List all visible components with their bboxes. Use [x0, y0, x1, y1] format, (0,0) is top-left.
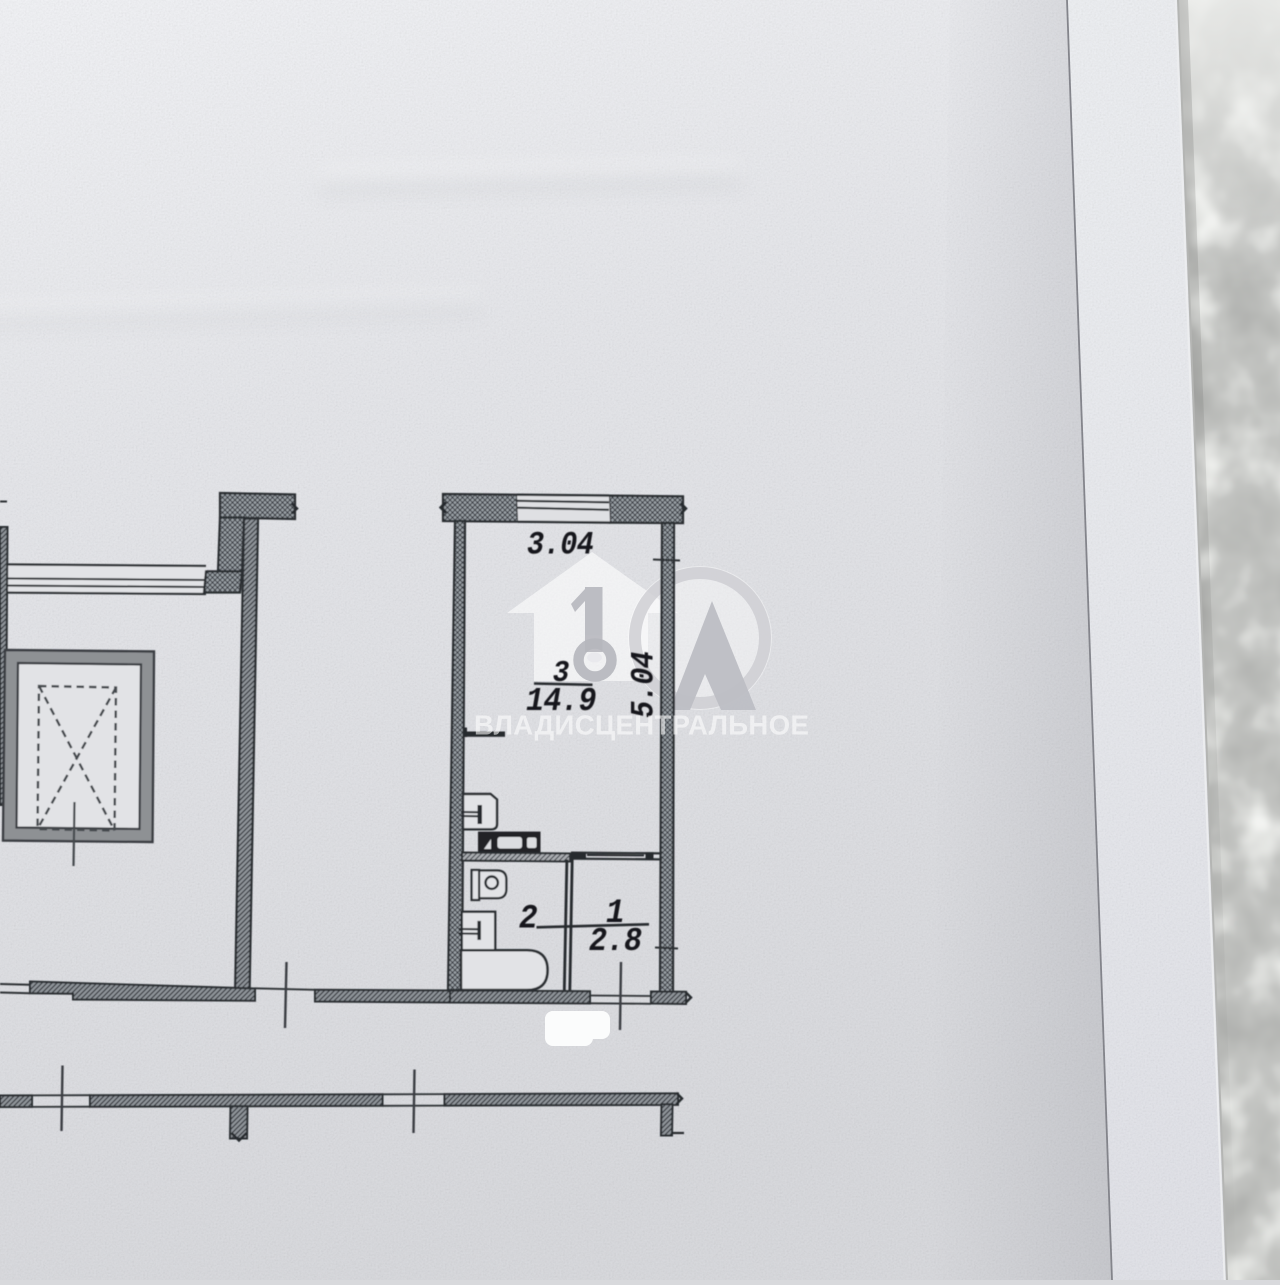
svg-text:3.04: 3.04 — [527, 527, 593, 564]
svg-text:ВЛАДИСЦЕНТРАЛЬНОЕ: ВЛАДИСЦЕНТРАЛЬНОЕ — [474, 710, 809, 741]
svg-text:2: 2 — [519, 899, 538, 938]
svg-text:5.04: 5.04 — [626, 652, 663, 718]
svg-text:2.8: 2.8 — [589, 924, 642, 961]
